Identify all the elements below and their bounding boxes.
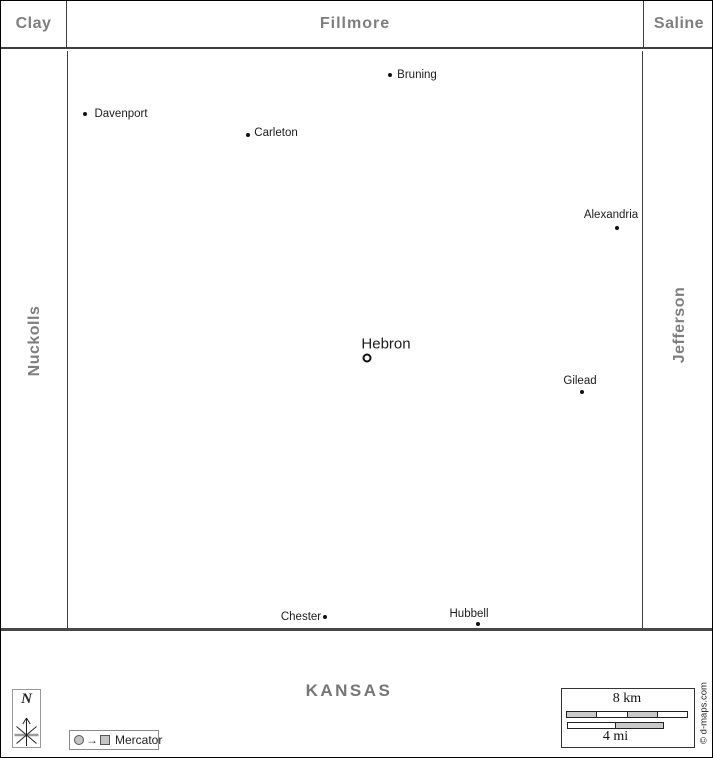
town-dot [476,622,480,626]
town-dot [580,390,584,394]
scale-bar-km [566,711,688,718]
town-label: Alexandria [584,209,638,221]
top-neighbor-band: Clay Fillmore Saline [1,1,713,49]
town-label: Hubbell [450,608,489,620]
north-indicator: N [12,689,41,748]
scale-bar-box: 8 km 4 mi [561,688,695,748]
neighbor-label-jefferson: Jefferson [671,287,689,364]
north-label: N [21,691,32,708]
scale-segment [658,712,687,717]
scale-segment [568,723,616,728]
map-credit: © d-maps.com [699,682,710,744]
scale-mi-label: 4 mi [567,729,664,745]
town-dot [323,615,327,619]
scale-segment [616,723,663,728]
town-label: Bruning [397,69,437,81]
state-border-line [1,628,713,631]
town-dot [246,133,250,137]
town-label: Gilead [563,375,596,387]
county-boundary [67,51,643,628]
county-map-page: Clay Fillmore Saline Nuckolls Jefferson … [0,0,713,758]
scale-segment [597,712,627,717]
neighbor-label-kansas: KANSAS [306,681,393,701]
projection-legend: → Mercator [69,730,159,750]
town-label: Davenport [94,108,147,120]
town-dot [388,73,392,77]
neighbor-label-saline: Saline [643,1,713,47]
scale-segment [628,712,658,717]
scale-segment [567,712,597,717]
neighbor-label-nuckolls: Nuckolls [26,306,44,377]
neighbor-label-fillmore: Fillmore [67,1,643,47]
projected-square-icon [100,735,110,745]
town-label: Chester [281,611,321,623]
scale-bar-mi [567,722,664,729]
compass-star-icon [13,709,40,747]
county-seat-marker [363,354,372,363]
arrow-right-icon: → [86,734,98,746]
neighbor-label-clay: Clay [1,1,67,47]
town-dot [615,226,619,230]
town-dot [83,112,87,116]
projection-name: Mercator [115,733,162,747]
globe-circle-icon [74,735,84,745]
scale-km-label: 8 km [566,691,688,707]
town-label: Carleton [254,127,297,139]
county-seat-label: Hebron [361,336,410,353]
